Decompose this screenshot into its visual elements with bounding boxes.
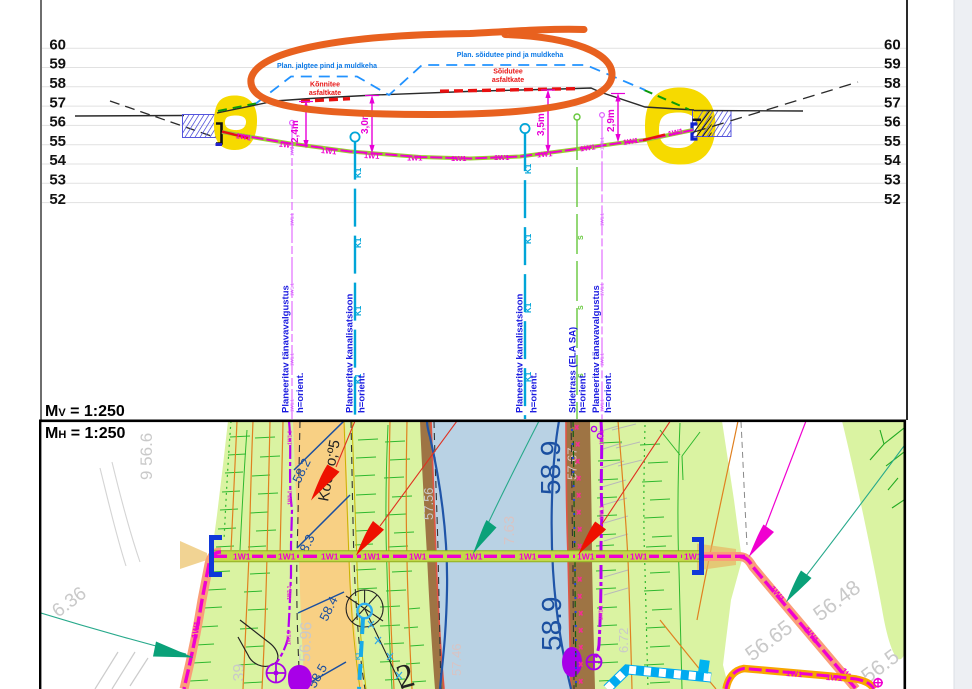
svg-text:2,4m: 2,4m <box>290 120 301 143</box>
svg-text:h=orient.: h=orient. <box>578 373 589 413</box>
svg-text:58: 58 <box>884 75 901 92</box>
svg-text:1W1: 1W1 <box>826 673 844 683</box>
svg-text:Planeeritav tänavavalgustus: Planeeritav tänavavalgustus <box>591 285 602 413</box>
svg-text:h=orient.: h=orient. <box>295 373 306 413</box>
svg-text:55: 55 <box>884 133 901 150</box>
svg-text:MV = 1:250: MV = 1:250 <box>45 403 125 420</box>
svg-text:1W1: 1W1 <box>278 552 296 562</box>
svg-text:58: 58 <box>49 75 66 92</box>
svg-text:K1: K1 <box>354 167 363 178</box>
svg-text:1W1.1: 1W1.1 <box>290 142 295 156</box>
svg-text:Sõidutee: Sõidutee <box>493 69 523 76</box>
svg-text:57: 57 <box>49 94 66 111</box>
svg-text:1W1: 1W1 <box>494 153 509 162</box>
svg-text:Kõnnitee: Kõnnitee <box>310 82 340 89</box>
svg-text:59: 59 <box>49 56 66 73</box>
svg-text:58.9: 58.9 <box>535 441 566 496</box>
svg-text:60: 60 <box>49 36 66 53</box>
svg-text:1W1.1: 1W1.1 <box>287 630 293 645</box>
svg-text:1W1.1: 1W1.1 <box>599 605 605 620</box>
svg-text:1W1: 1W1 <box>465 552 483 562</box>
svg-text:S: S <box>578 235 585 240</box>
svg-text:asfaltkate: asfaltkate <box>492 77 524 84</box>
svg-text:57.56: 57.56 <box>421 487 436 520</box>
svg-text:K1: K1 <box>354 237 363 248</box>
svg-text:1W1: 1W1 <box>630 552 648 562</box>
svg-text:1W1: 1W1 <box>786 669 804 679</box>
svg-text:h=orient.: h=orient. <box>603 373 614 413</box>
svg-text:3,5m: 3,5m <box>536 113 547 136</box>
svg-text:1W1: 1W1 <box>233 552 251 562</box>
svg-text:S: S <box>578 305 585 310</box>
svg-text:1W1: 1W1 <box>321 146 337 157</box>
svg-text:1W1: 1W1 <box>409 552 427 562</box>
svg-text:MH = 1:250: MH = 1:250 <box>45 425 126 442</box>
svg-text:57.46: 57.46 <box>449 643 464 676</box>
svg-text:56: 56 <box>49 114 66 131</box>
svg-text:52: 52 <box>49 191 66 208</box>
svg-text:1W1.1: 1W1.1 <box>600 212 605 226</box>
svg-text:1W1: 1W1 <box>407 154 422 163</box>
svg-text:1W1.1: 1W1.1 <box>288 430 294 445</box>
svg-text:7.63: 7.63 <box>501 516 518 545</box>
svg-text:56: 56 <box>884 114 901 131</box>
svg-text:K1: K1 <box>356 652 362 660</box>
svg-text:56.96: 56.96 <box>297 621 315 662</box>
svg-text:53: 53 <box>884 172 901 189</box>
svg-text:59: 59 <box>884 56 901 73</box>
svg-text:Plan. jalgtee pind ja muldkeha: Plan. jalgtee pind ja muldkeha <box>277 63 377 70</box>
svg-text:1W1: 1W1 <box>363 552 381 562</box>
svg-text:h=orient.: h=orient. <box>529 373 540 413</box>
svg-text:9 56.6: 9 56.6 <box>137 433 156 480</box>
svg-text:.39: .39 <box>231 664 248 686</box>
svg-text:6.72: 6.72 <box>616 628 631 653</box>
svg-text:2,9m: 2,9m <box>606 109 617 132</box>
svg-text:55: 55 <box>49 133 66 150</box>
svg-text:1W1: 1W1 <box>451 154 466 163</box>
svg-text:1W1.1: 1W1.1 <box>288 490 294 505</box>
svg-text:Plan. sõidutee pind ja muldkeh: Plan. sõidutee pind ja muldkeha <box>457 52 564 59</box>
svg-text:57: 57 <box>884 94 901 111</box>
svg-text:1W1: 1W1 <box>321 552 339 562</box>
svg-text:53: 53 <box>49 172 66 189</box>
svg-text:h=orient.: h=orient. <box>357 373 368 413</box>
svg-text:54: 54 <box>49 152 66 169</box>
svg-text:52: 52 <box>884 191 901 208</box>
svg-text:K1: K1 <box>524 233 533 244</box>
svg-text:Planeeritav kanalisatsioon: Planeeritav kanalisatsioon <box>345 293 356 413</box>
svg-text:asfaltkate: asfaltkate <box>309 90 341 97</box>
svg-text:1W1.1: 1W1.1 <box>600 505 606 520</box>
svg-text:Planeeritav tänavavalgustus: Planeeritav tänavavalgustus <box>281 285 292 413</box>
svg-text:60: 60 <box>884 36 901 53</box>
svg-text:1W1.1: 1W1.1 <box>287 585 293 600</box>
svg-text:54: 54 <box>884 152 901 169</box>
svg-text:1W1.1: 1W1.1 <box>290 212 295 226</box>
svg-text:1W1: 1W1 <box>537 149 553 159</box>
svg-text:K1: K1 <box>524 163 533 174</box>
svg-text:1W1: 1W1 <box>519 552 537 562</box>
svg-text:1W1.1: 1W1.1 <box>600 136 605 150</box>
svg-text:Planeeritav kanalisatsioon: Planeeritav kanalisatsioon <box>515 293 526 413</box>
